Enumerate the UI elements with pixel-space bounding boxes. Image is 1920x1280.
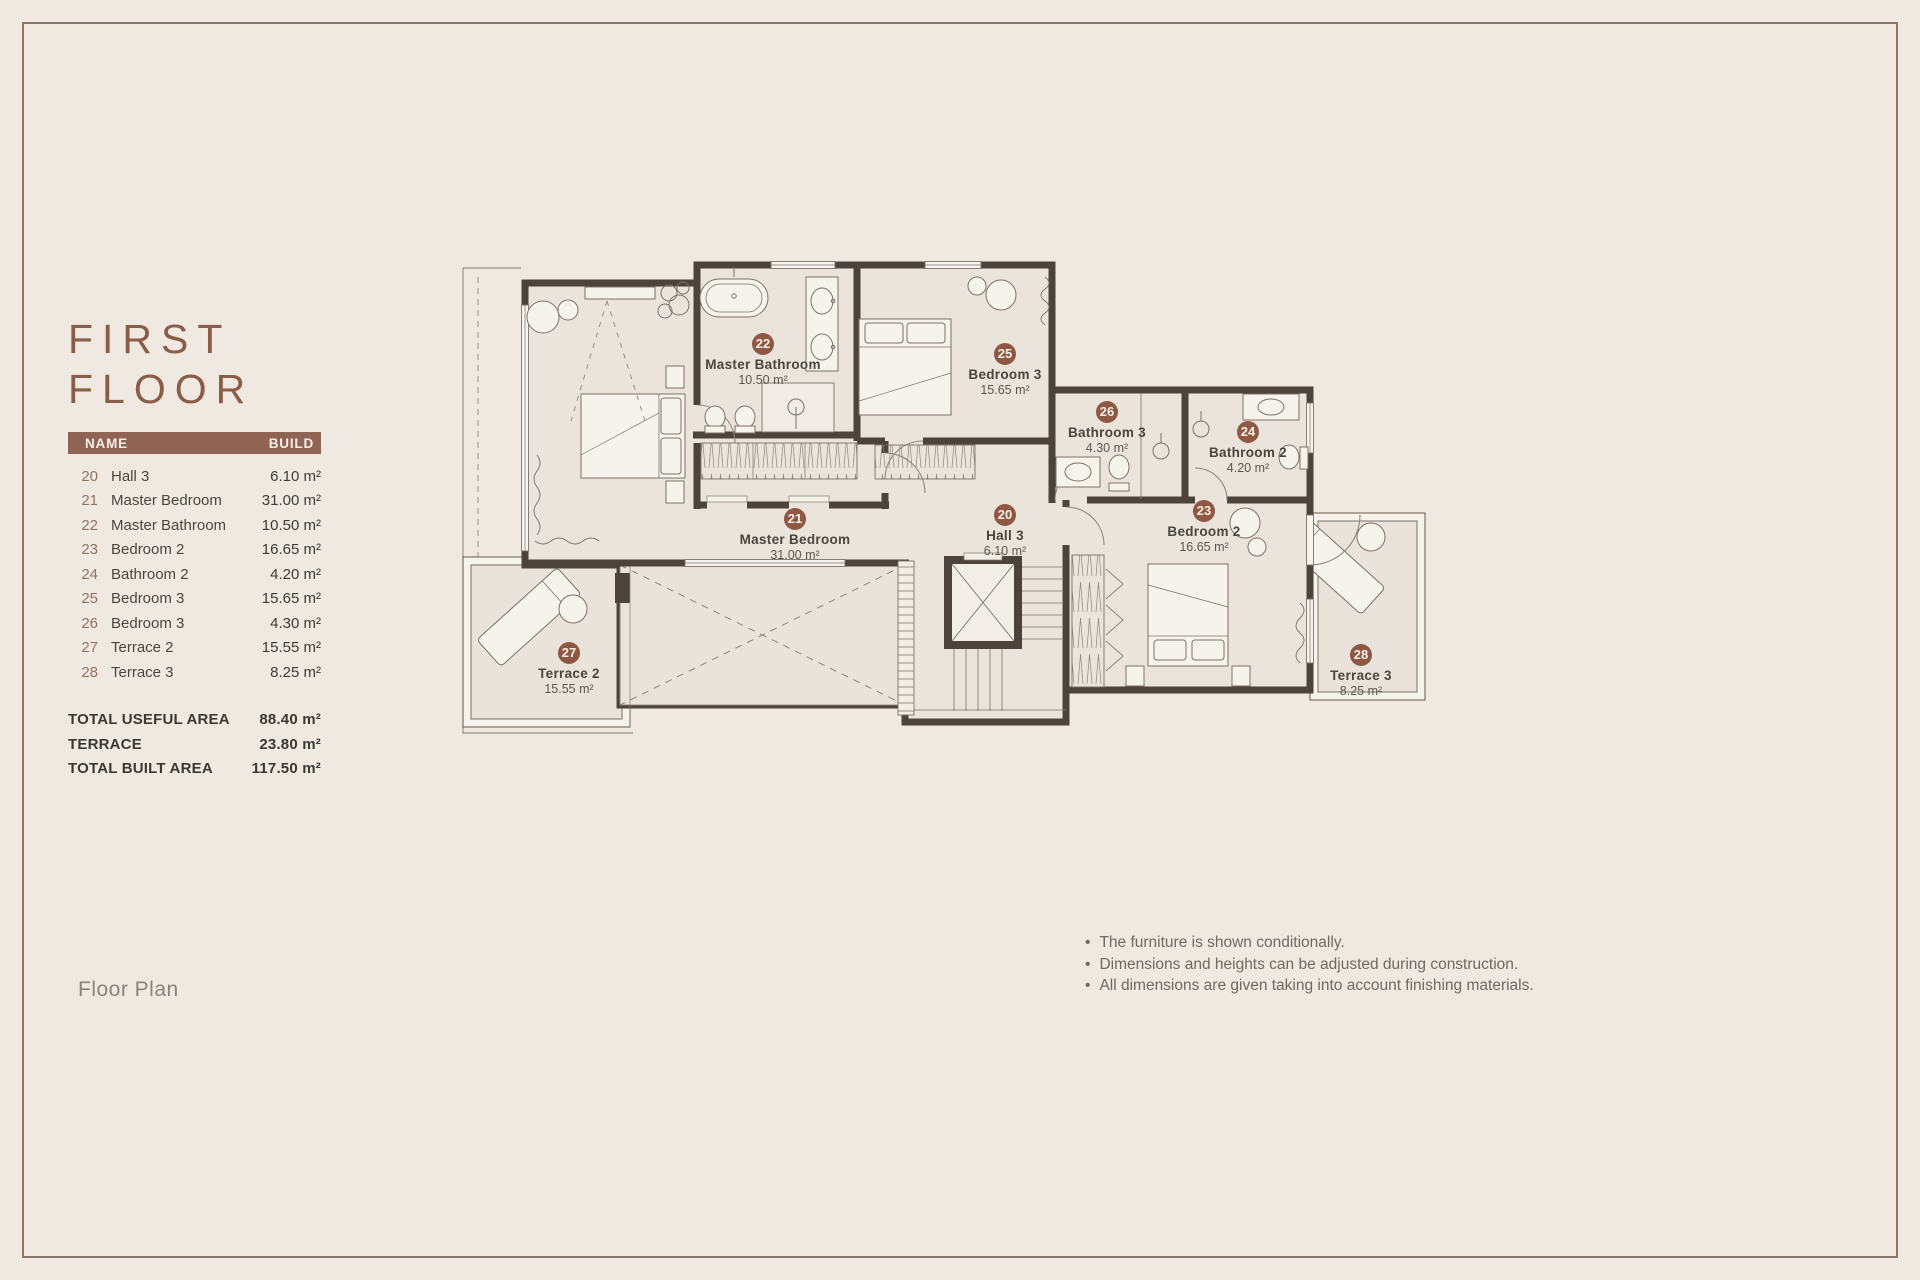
row-number: 28 bbox=[68, 664, 98, 681]
header-name: NAME bbox=[85, 436, 128, 451]
row-value: 6.10 m² bbox=[270, 468, 321, 485]
table-row: 28Terrace 38.25 m² bbox=[68, 660, 321, 685]
row-name: Hall 3 bbox=[111, 468, 270, 485]
nightstand-icon bbox=[1126, 666, 1144, 686]
floor-plan: 20Hall 36.10 m²21Master Bedroom31.00 m²2… bbox=[455, 255, 1435, 735]
void-area bbox=[615, 565, 905, 727]
title-line-2: FLOOR bbox=[68, 364, 254, 414]
row-name: Master Bedroom bbox=[111, 492, 262, 509]
row-number: 27 bbox=[68, 639, 98, 656]
floor-plan-drawing bbox=[455, 255, 1435, 735]
row-number: 23 bbox=[68, 541, 98, 558]
note-text: All dimensions are given taking into acc… bbox=[1099, 975, 1533, 997]
note-item: •The furniture is shown conditionally. bbox=[1085, 932, 1565, 954]
row-value: 15.65 m² bbox=[262, 590, 321, 607]
floor-plan-page: FIRST FLOOR NAME BUILD 20Hall 36.10 m²21… bbox=[0, 0, 1920, 1280]
elevator bbox=[944, 553, 1022, 649]
chair-icon bbox=[527, 301, 559, 333]
row-number: 26 bbox=[68, 615, 98, 632]
row-name: Bedroom 2 bbox=[111, 541, 262, 558]
row-name: Master Bathroom bbox=[111, 517, 262, 534]
row-value: 10.50 m² bbox=[262, 517, 321, 534]
shower-icon bbox=[762, 383, 834, 432]
column bbox=[615, 573, 630, 603]
vanity-icon bbox=[1243, 394, 1299, 420]
vanity-icon bbox=[1056, 457, 1100, 487]
row-name: Bedroom 3 bbox=[111, 590, 262, 607]
header-build: BUILD bbox=[269, 436, 314, 451]
chair-icon bbox=[1230, 508, 1260, 538]
side-table-icon bbox=[1248, 538, 1266, 556]
row-value: 16.65 m² bbox=[262, 541, 321, 558]
toilet-icon bbox=[1279, 445, 1299, 469]
toilet-icon bbox=[1109, 455, 1129, 479]
side-table-icon bbox=[558, 300, 578, 320]
row-name: Terrace 2 bbox=[111, 639, 262, 656]
bidet-icon bbox=[735, 406, 755, 428]
nightstand-icon bbox=[666, 366, 684, 388]
total-label: TOTAL BUILT AREA bbox=[68, 760, 213, 777]
row-value: 4.30 m² bbox=[270, 615, 321, 632]
total-row: TERRACE23.80 m² bbox=[68, 732, 321, 757]
total-row: TOTAL BUILT AREA117.50 m² bbox=[68, 757, 321, 782]
row-number: 25 bbox=[68, 590, 98, 607]
table-row: 20Hall 36.10 m² bbox=[68, 464, 321, 489]
note-text: The furniture is shown conditionally. bbox=[1099, 932, 1344, 954]
floor-plan-caption: Floor Plan bbox=[78, 978, 179, 1002]
row-value: 15.55 m² bbox=[262, 639, 321, 656]
vanity-icon bbox=[806, 277, 838, 371]
total-row: TOTAL USEFUL AREA88.40 m² bbox=[68, 708, 321, 733]
chair-icon bbox=[986, 280, 1016, 310]
table-row: 27Terrace 215.55 m² bbox=[68, 636, 321, 661]
bullet-icon: • bbox=[1085, 975, 1090, 997]
row-name: Bedroom 3 bbox=[111, 615, 270, 632]
bullet-icon: • bbox=[1085, 932, 1090, 954]
nightstand-icon bbox=[1232, 666, 1250, 686]
console-icon bbox=[585, 287, 655, 299]
title-line-1: FIRST bbox=[68, 314, 254, 364]
row-number: 21 bbox=[68, 492, 98, 509]
total-label: TOTAL USEFUL AREA bbox=[68, 711, 230, 728]
note-text: Dimensions and heights can be adjusted d… bbox=[1099, 954, 1518, 976]
note-item: •Dimensions and heights can be adjusted … bbox=[1085, 954, 1565, 976]
row-name: Terrace 3 bbox=[111, 664, 270, 681]
table-row: 26Bedroom 34.30 m² bbox=[68, 611, 321, 636]
bullet-icon: • bbox=[1085, 954, 1090, 976]
row-number: 22 bbox=[68, 517, 98, 534]
total-label: TERRACE bbox=[68, 736, 142, 753]
total-value: 88.40 m² bbox=[259, 711, 321, 728]
table-row: 23Bedroom 216.65 m² bbox=[68, 538, 321, 563]
area-table-rows: 20Hall 36.10 m²21Master Bedroom31.00 m²2… bbox=[68, 464, 321, 685]
table-row: 21Master Bedroom31.00 m² bbox=[68, 489, 321, 514]
row-name: Bathroom 2 bbox=[111, 566, 270, 583]
terrace-2 bbox=[463, 557, 630, 727]
note-item: •All dimensions are given taking into ac… bbox=[1085, 975, 1565, 997]
row-number: 20 bbox=[68, 468, 98, 485]
row-value: 4.20 m² bbox=[270, 566, 321, 583]
row-value: 8.25 m² bbox=[270, 664, 321, 681]
page-title: FIRST FLOOR bbox=[68, 314, 254, 414]
round-table-icon bbox=[1357, 523, 1385, 551]
table-row: 22Master Bathroom10.50 m² bbox=[68, 513, 321, 538]
total-value: 117.50 m² bbox=[252, 760, 321, 777]
total-value: 23.80 m² bbox=[259, 736, 321, 753]
table-row: 25Bedroom 315.65 m² bbox=[68, 587, 321, 612]
area-table-totals: TOTAL USEFUL AREA88.40 m²TERRACE23.80 m²… bbox=[68, 708, 321, 782]
side-table-icon bbox=[968, 277, 986, 295]
nightstand-icon bbox=[666, 481, 684, 503]
area-table-header: NAME BUILD bbox=[68, 432, 321, 454]
area-table: NAME BUILD 20Hall 36.10 m²21Master Bedro… bbox=[68, 432, 321, 781]
toilet-icon bbox=[705, 406, 725, 428]
notes-list: •The furniture is shown conditionally.•D… bbox=[1085, 932, 1565, 997]
table-row: 24Bathroom 24.20 m² bbox=[68, 562, 321, 587]
row-number: 24 bbox=[68, 566, 98, 583]
round-table-icon bbox=[559, 595, 587, 623]
row-value: 31.00 m² bbox=[262, 492, 321, 509]
